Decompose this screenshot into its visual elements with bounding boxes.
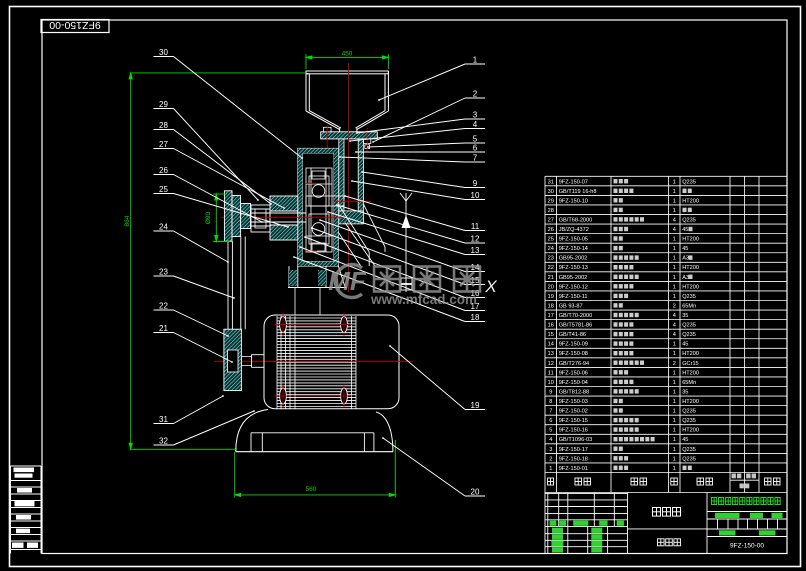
svg-text:9FZ150-00: 9FZ150-00 bbox=[49, 19, 101, 31]
svg-text:9FZ-150-07: 9FZ-150-07 bbox=[559, 179, 588, 185]
svg-text:1: 1 bbox=[673, 466, 676, 472]
svg-text:23: 23 bbox=[159, 268, 168, 277]
svg-text:GB95-2002: GB95-2002 bbox=[559, 256, 588, 262]
svg-text:27: 27 bbox=[548, 218, 554, 224]
svg-text:5: 5 bbox=[549, 428, 552, 434]
svg-text:9FZ-150-18: 9FZ-150-18 bbox=[559, 456, 588, 462]
svg-text:20: 20 bbox=[471, 488, 480, 497]
svg-text:28: 28 bbox=[159, 121, 168, 130]
svg-text:Ø90: Ø90 bbox=[205, 211, 212, 224]
svg-text:GB/T70-2000: GB/T70-2000 bbox=[559, 313, 593, 319]
svg-text:HT200: HT200 bbox=[682, 399, 699, 405]
svg-text:1: 1 bbox=[673, 418, 676, 424]
svg-text:9FZ-150-14: 9FZ-150-14 bbox=[559, 246, 588, 252]
svg-text:5: 5 bbox=[473, 135, 478, 144]
svg-text:14: 14 bbox=[548, 342, 554, 348]
svg-text:4: 4 bbox=[473, 120, 478, 129]
svg-text:4: 4 bbox=[549, 437, 552, 443]
svg-text:9FZ-150-09: 9FZ-150-09 bbox=[559, 342, 588, 348]
svg-text:Q235: Q235 bbox=[682, 323, 696, 329]
svg-text:19: 19 bbox=[471, 401, 480, 410]
svg-text:10: 10 bbox=[471, 191, 480, 200]
svg-text:9FZ-150-03: 9FZ-150-03 bbox=[559, 399, 588, 405]
svg-text:12: 12 bbox=[471, 235, 480, 244]
svg-text:HT200: HT200 bbox=[682, 198, 699, 204]
svg-text:2: 2 bbox=[473, 90, 478, 99]
svg-text:864: 864 bbox=[124, 215, 131, 226]
svg-text:27: 27 bbox=[159, 140, 168, 149]
svg-text:HT200: HT200 bbox=[682, 428, 699, 434]
svg-text:9FZ-150-12: 9FZ-150-12 bbox=[559, 284, 588, 290]
svg-text:31: 31 bbox=[548, 179, 554, 185]
svg-text:18: 18 bbox=[548, 304, 554, 310]
svg-text:35: 35 bbox=[682, 390, 688, 396]
svg-text:GB/T68-2000: GB/T68-2000 bbox=[559, 218, 593, 224]
svg-text:4: 4 bbox=[673, 218, 676, 224]
svg-text:4: 4 bbox=[673, 332, 676, 338]
svg-text:25: 25 bbox=[548, 237, 554, 243]
svg-text:Q235: Q235 bbox=[682, 294, 696, 300]
svg-text:1: 1 bbox=[473, 56, 478, 65]
svg-text:GB 93-87: GB 93-87 bbox=[559, 304, 583, 310]
svg-text:2: 2 bbox=[673, 304, 676, 310]
svg-text:HT200: HT200 bbox=[682, 265, 699, 271]
svg-text:1: 1 bbox=[673, 198, 676, 204]
svg-text:45: 45 bbox=[682, 342, 688, 348]
svg-text:24: 24 bbox=[159, 223, 168, 232]
svg-text:9FZ-150-01: 9FZ-150-01 bbox=[559, 466, 588, 472]
svg-text:1: 1 bbox=[673, 179, 676, 185]
svg-text:Q235: Q235 bbox=[682, 409, 696, 415]
svg-text:22: 22 bbox=[159, 302, 168, 311]
svg-text:1: 1 bbox=[673, 409, 676, 415]
svg-text:20: 20 bbox=[548, 284, 554, 290]
svg-text:1: 1 bbox=[673, 456, 676, 462]
svg-text:35: 35 bbox=[682, 313, 688, 319]
svg-text:HT200: HT200 bbox=[682, 370, 699, 376]
svg-text:Q235: Q235 bbox=[682, 456, 696, 462]
svg-text:1: 1 bbox=[673, 390, 676, 396]
svg-text:GB/T5781-86: GB/T5781-86 bbox=[559, 323, 593, 329]
svg-text:560: 560 bbox=[306, 486, 317, 493]
svg-text:22: 22 bbox=[548, 265, 554, 271]
svg-text:11: 11 bbox=[548, 370, 554, 376]
svg-text:9FZ-150-08: 9FZ-150-08 bbox=[559, 351, 588, 357]
svg-text:29: 29 bbox=[159, 100, 168, 109]
svg-text:Q235: Q235 bbox=[682, 332, 696, 338]
svg-text:1: 1 bbox=[673, 256, 676, 262]
svg-text:12: 12 bbox=[548, 361, 554, 367]
svg-text:6: 6 bbox=[549, 418, 552, 424]
svg-text:45: 45 bbox=[682, 227, 688, 233]
svg-text:GB/T41-86: GB/T41-86 bbox=[559, 332, 586, 338]
svg-text:HT200: HT200 bbox=[682, 237, 699, 243]
svg-text:9FZ-150-11: 9FZ-150-11 bbox=[559, 294, 588, 300]
svg-text:26: 26 bbox=[548, 227, 554, 233]
svg-text:4: 4 bbox=[673, 323, 676, 329]
svg-text:45: 45 bbox=[682, 437, 688, 443]
svg-text:17: 17 bbox=[548, 313, 554, 319]
svg-text:7: 7 bbox=[549, 409, 552, 415]
svg-text:65Mn: 65Mn bbox=[682, 380, 696, 386]
svg-text:24: 24 bbox=[548, 246, 554, 252]
svg-text:9: 9 bbox=[549, 390, 552, 396]
svg-text:3: 3 bbox=[549, 447, 552, 453]
svg-text:9: 9 bbox=[473, 179, 478, 188]
svg-text:6: 6 bbox=[473, 144, 478, 153]
svg-text:JB/ZQ-4372: JB/ZQ-4372 bbox=[559, 227, 589, 233]
svg-text:1: 1 bbox=[673, 189, 676, 195]
svg-text:8: 8 bbox=[549, 399, 552, 405]
svg-text:A3: A3 bbox=[682, 256, 689, 262]
svg-text:MF: MF bbox=[328, 266, 367, 296]
svg-text:www.mfcad.com: www.mfcad.com bbox=[370, 292, 477, 307]
svg-text:GCr15: GCr15 bbox=[682, 361, 698, 367]
svg-text:29: 29 bbox=[548, 198, 554, 204]
svg-text:21: 21 bbox=[159, 324, 168, 333]
svg-text:2: 2 bbox=[549, 456, 552, 462]
svg-text:23: 23 bbox=[548, 256, 554, 262]
svg-text:1: 1 bbox=[673, 399, 676, 405]
svg-text:65Mn: 65Mn bbox=[682, 304, 696, 310]
svg-text:21: 21 bbox=[548, 275, 554, 281]
svg-text:HT200: HT200 bbox=[682, 351, 699, 357]
svg-text:3: 3 bbox=[473, 111, 478, 120]
svg-text:9FZ-150-13: 9FZ-150-13 bbox=[559, 265, 588, 271]
svg-text:1: 1 bbox=[673, 380, 676, 386]
svg-text:10: 10 bbox=[548, 380, 554, 386]
svg-text:7: 7 bbox=[473, 154, 478, 163]
svg-text:9FZ-150-06: 9FZ-150-06 bbox=[559, 370, 588, 376]
svg-text:9FZ-150-04: 9FZ-150-04 bbox=[559, 380, 588, 386]
svg-text:15: 15 bbox=[548, 332, 554, 338]
svg-text:450: 450 bbox=[342, 51, 353, 58]
svg-text:GB/T1096-03: GB/T1096-03 bbox=[559, 437, 593, 443]
svg-text:26: 26 bbox=[159, 166, 168, 175]
svg-text:1: 1 bbox=[673, 237, 676, 243]
svg-text:9FZ-150-17: 9FZ-150-17 bbox=[559, 447, 588, 453]
svg-text:9FZ-150-15: 9FZ-150-15 bbox=[559, 418, 588, 424]
svg-text:1: 1 bbox=[673, 447, 676, 453]
svg-text:1: 1 bbox=[673, 208, 676, 214]
svg-text:9FZ-150-16: 9FZ-150-16 bbox=[559, 428, 588, 434]
svg-text:1: 1 bbox=[673, 284, 676, 290]
svg-text:11: 11 bbox=[471, 222, 480, 231]
svg-text:9FZ-150-00: 9FZ-150-00 bbox=[730, 543, 764, 550]
svg-text:25: 25 bbox=[159, 185, 168, 194]
svg-text:1: 1 bbox=[549, 466, 552, 472]
svg-text:1: 1 bbox=[673, 428, 676, 434]
svg-text:13: 13 bbox=[471, 246, 480, 255]
svg-text:18: 18 bbox=[471, 313, 480, 322]
svg-text:31: 31 bbox=[159, 415, 168, 424]
svg-text:Q235: Q235 bbox=[682, 179, 696, 185]
svg-text:45: 45 bbox=[682, 246, 688, 252]
svg-text:GB/T276-94: GB/T276-94 bbox=[559, 361, 589, 367]
svg-text:Q235: Q235 bbox=[682, 447, 696, 453]
svg-text:16: 16 bbox=[548, 323, 554, 329]
svg-text:GB/T119 16-h8: GB/T119 16-h8 bbox=[559, 189, 597, 195]
svg-text:HT200: HT200 bbox=[682, 284, 699, 290]
svg-text:GB95-2002: GB95-2002 bbox=[559, 275, 588, 281]
svg-text:19: 19 bbox=[548, 294, 554, 300]
svg-text:32: 32 bbox=[159, 437, 168, 446]
svg-text:4: 4 bbox=[673, 313, 676, 319]
svg-text:1: 1 bbox=[673, 370, 676, 376]
svg-text:GB/T812-88: GB/T812-88 bbox=[559, 390, 589, 396]
svg-text:1: 1 bbox=[673, 265, 676, 271]
svg-text:9FZ-150-10: 9FZ-150-10 bbox=[559, 198, 588, 204]
svg-text:2: 2 bbox=[673, 361, 676, 367]
svg-text:1: 1 bbox=[673, 342, 676, 348]
svg-text:Q235: Q235 bbox=[682, 218, 696, 224]
svg-text:X: X bbox=[484, 277, 497, 296]
svg-text:1: 1 bbox=[673, 275, 676, 281]
svg-text:A3: A3 bbox=[682, 275, 689, 281]
svg-text:28: 28 bbox=[548, 208, 554, 214]
svg-text:Q235: Q235 bbox=[682, 418, 696, 424]
svg-text:30: 30 bbox=[548, 189, 554, 195]
svg-text:13: 13 bbox=[548, 351, 554, 357]
svg-text:1: 1 bbox=[673, 294, 676, 300]
svg-text:4: 4 bbox=[673, 227, 676, 233]
svg-text:9FZ-150-05: 9FZ-150-05 bbox=[559, 237, 588, 243]
svg-text:1: 1 bbox=[673, 351, 676, 357]
svg-text:1: 1 bbox=[673, 437, 676, 443]
svg-text:9FZ-150-02: 9FZ-150-02 bbox=[559, 409, 588, 415]
svg-text:30: 30 bbox=[159, 48, 168, 57]
svg-text:1: 1 bbox=[673, 246, 676, 252]
